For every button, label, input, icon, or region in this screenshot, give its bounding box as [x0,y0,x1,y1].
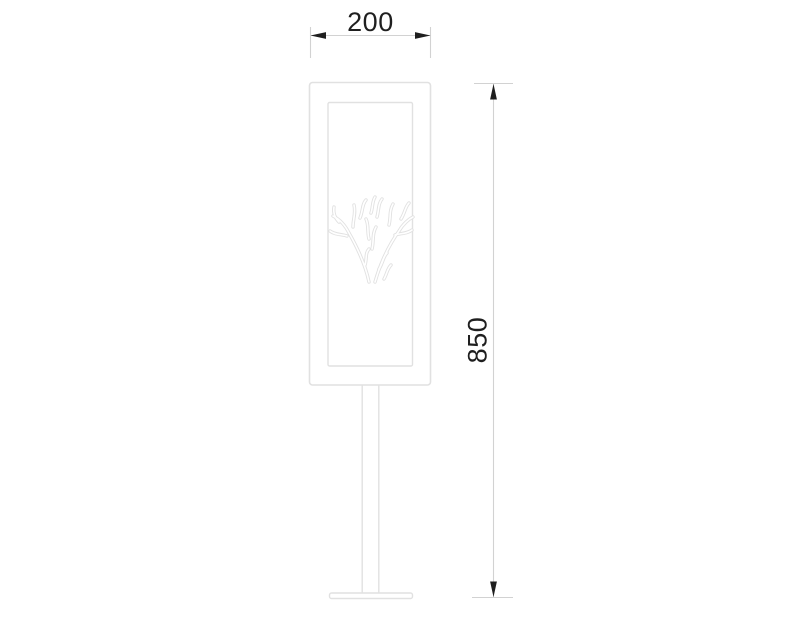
base-plate [330,593,413,599]
tree-ornament [330,197,413,282]
height-dimension-label: 850 [463,317,493,364]
post [362,385,379,593]
drawing-canvas: 200 850 [0,0,800,640]
height-arrow-top [490,84,497,100]
technical-drawing: 200 850 [0,0,800,640]
width-dimension-label: 200 [347,7,394,37]
height-dimension: 850 [463,84,514,598]
width-arrow-right [415,32,431,39]
width-dimension: 200 [311,7,431,58]
sign-panel [310,83,431,386]
width-arrow-left [311,32,327,39]
height-arrow-bottom [490,582,497,598]
